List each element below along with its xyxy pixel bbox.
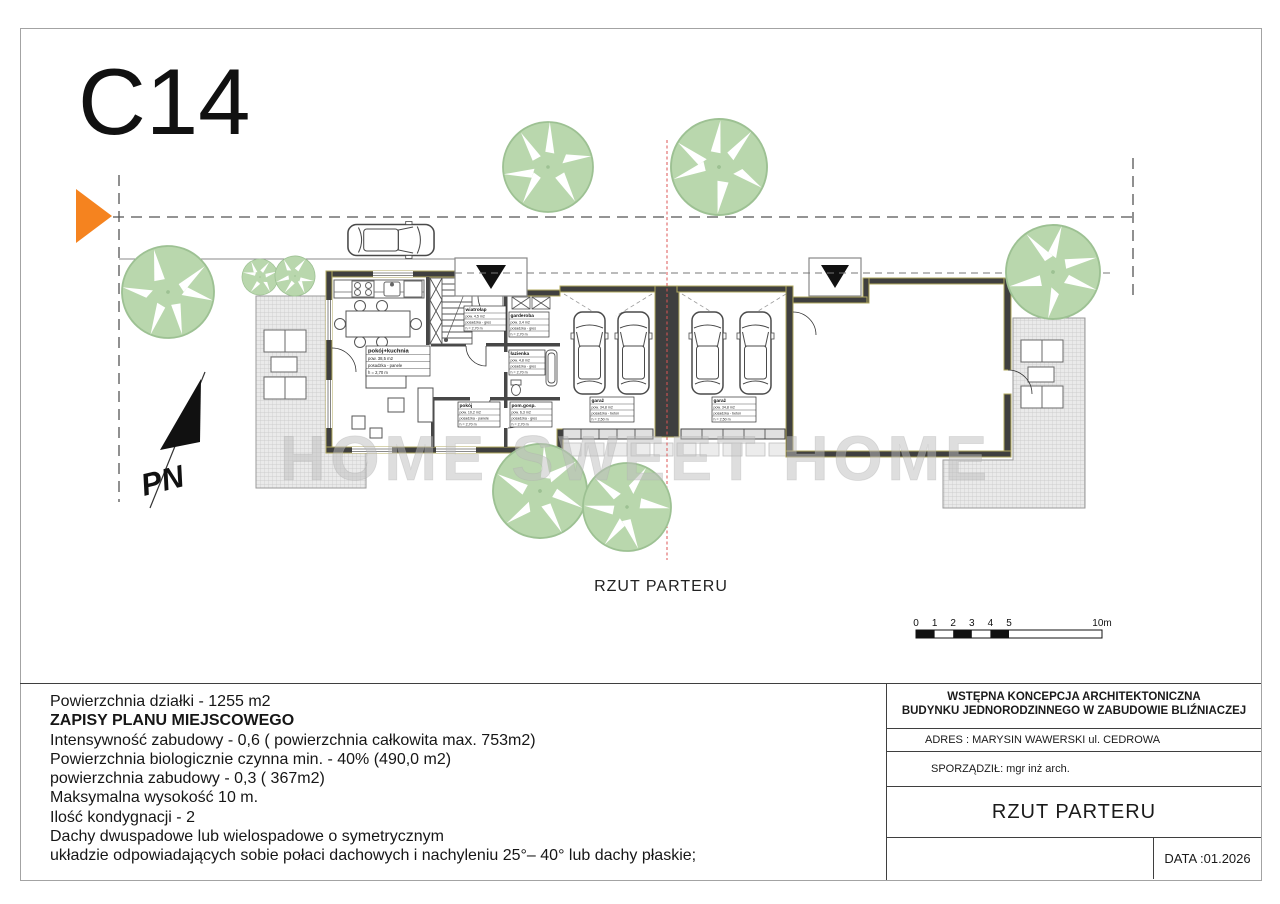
kitchen-counter [334,280,424,298]
scale-tick: 3 [969,618,975,629]
drawing-date: DATA :01.2026 [1153,838,1261,879]
regulation-line: Dachy dwuspadowe lub wielospadowe o syme… [50,827,870,846]
svg-text:pow. 4,8 m2: pow. 4,8 m2 [511,358,530,362]
regulation-line: Maksymalna wysokość 10 m. [50,788,870,807]
regulations-heading: ZAPISY PLANU MIEJSCOWEGO [50,711,870,730]
svg-text:posadzka - beton: posadzka - beton [714,411,742,415]
svg-text:garaż: garaż [592,398,605,404]
svg-text:łazienka: łazienka [511,351,530,357]
svg-text:pow. 4,5 m2: pow. 4,5 m2 [466,314,485,318]
room-label-garderoba: garderoba pow. 3,4 m2 posadzka - gres h … [509,312,549,337]
room-label-wiatrolap: wiatrołap pow. 4,5 m2 posadzka - gres h … [464,306,506,331]
title-block: WSTĘPNA KONCEPCJA ARCHITEKTONICZNA BUDYN… [886,684,1261,880]
regulation-line: powierzchnia zabudowy - 0,3 ( 367m2) [50,769,870,788]
watermark-text: HOME SWEET HOME [280,424,992,494]
scale-tick: 0 [913,618,919,629]
car-garage-icon [615,312,652,394]
project-address: ADRES : MARYSIN WAWERSKI ul. CEDROWA [887,729,1261,752]
svg-text:posadzka - panele: posadzka - panele [368,363,403,368]
scale-tick: 2 [950,618,956,629]
car-garage-icon [571,312,608,394]
scale-tick: 1 [932,618,938,629]
regulation-line: Powierzchnia biologicznie czynna min. - … [50,750,870,769]
svg-text:pom.gosp.: pom.gosp. [512,404,536,409]
svg-text:posadzka - gres: posadzka - gres [511,326,537,330]
project-author: SPORZĄDZIŁ: mgr inż arch. [887,752,1261,787]
svg-text:pow. 34,8 m2: pow. 34,8 m2 [714,405,735,409]
entrance-marker-left [455,258,527,296]
regulation-line: Powierzchnia działki - 1255 m2 [50,692,870,711]
north-label: PN [137,458,188,503]
car-garage-icon [737,312,774,394]
svg-text:wiatrołap: wiatrołap [465,307,487,313]
svg-text:garaż: garaż [714,398,727,404]
scale-bar: 0 1 2 3 4 5 10m [913,618,1112,638]
room-label-garaz-1: garaż pow. 34,8 m2 posadzka - beton h = … [590,397,634,422]
entrance-marker-right [809,258,861,296]
svg-text:posadzka - panele: posadzka - panele [460,416,489,420]
svg-text:pow. 10,2 m2: pow. 10,2 m2 [460,410,481,414]
svg-text:pow. 38,5 m2: pow. 38,5 m2 [368,356,394,361]
drawing-title: RZUT PARTERU [887,787,1261,838]
svg-text:pokój: pokój [460,403,473,409]
svg-text:garderoba: garderoba [511,313,535,319]
scale-tick: 4 [988,618,994,629]
regulations-block: Powierzchnia działki - 1255 m2 ZAPISY PL… [50,692,870,866]
title-block-footer: DATA :01.2026 [887,838,1261,879]
svg-text:h = 2,50 m: h = 2,50 m [714,417,731,421]
room-label-lazienka: łazienka pow. 4,8 m2 posadzka - gres h =… [509,350,545,375]
svg-text:h = 2,70 m: h = 2,70 m [511,332,528,336]
svg-text:h = 2,70 m: h = 2,70 m [368,370,388,375]
svg-text:pokój+kuchnia: pokój+kuchnia [368,349,410,355]
regulation-line: Ilość kondygnacji - 2 [50,808,870,827]
regulation-line: układzie odpowiadających sobie połaci da… [50,846,870,865]
svg-text:pow. 34,8 m2: pow. 34,8 m2 [592,405,613,409]
room-label-garaz-2: garaż pow. 34,8 m2 posadzka - beton h = … [712,397,756,422]
svg-text:h = 2,70 m: h = 2,70 m [511,370,528,374]
svg-text:pow. 6,3 m2: pow. 6,3 m2 [512,410,531,414]
north-arrow: PN [137,372,205,508]
scale-tick: 5 [1006,618,1012,629]
project-title-line1: WSTĘPNA KONCEPCJA ARCHITEKTONICZNA [887,691,1261,705]
svg-text:h = 2,50 m: h = 2,50 m [592,417,609,421]
regulation-line: Intensywność zabudowy - 0,6 ( powierzchn… [50,731,870,750]
project-title: WSTĘPNA KONCEPCJA ARCHITEKTONICZNA BUDYN… [887,684,1261,729]
svg-text:posadzka - gres: posadzka - gres [466,320,492,324]
orange-pointer-icon [76,189,112,243]
room-label-salon: pokój+kuchnia pow. 38,5 m2 posadzka - pa… [366,346,430,376]
title-block-empty-cell [887,838,1153,879]
car-garage-icon [689,312,726,394]
svg-text:posadzka - gres: posadzka - gres [511,364,537,368]
plan-caption: RZUT PARTERU [575,578,747,596]
svg-text:h = 2,70 m: h = 2,70 m [466,326,483,330]
svg-text:posadzka - beton: posadzka - beton [592,411,620,415]
project-title-line2: BUDYNKU JEDNORODZINNEGO W ZABUDOWIE BLIŹ… [887,705,1261,719]
scale-end-label: 10m [1092,618,1111,629]
svg-text:pow. 3,4 m2: pow. 3,4 m2 [511,320,530,324]
svg-text:posadzka - gres: posadzka - gres [512,416,538,420]
car-street-icon [348,222,434,259]
